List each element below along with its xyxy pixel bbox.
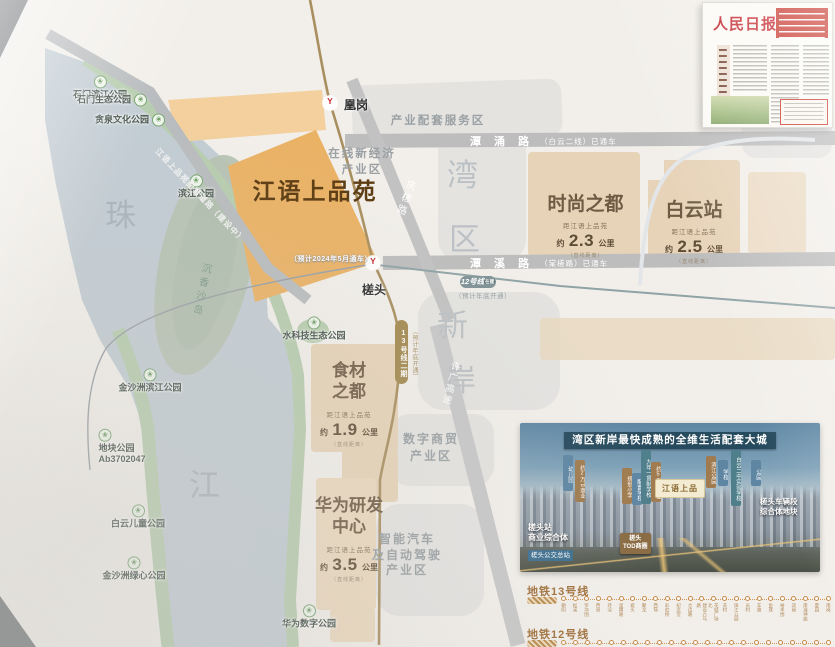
station-dot-icon xyxy=(745,596,750,601)
metro-station-item xyxy=(608,640,615,647)
newspaper-clipping: 人民日报 xyxy=(702,2,833,128)
bay-char-wan: 湾 xyxy=(447,150,480,195)
distance-value: 约 2.5 公里 xyxy=(648,237,740,257)
station-huanggang-label: 凰岗 xyxy=(344,96,368,113)
station-dot-icon xyxy=(790,640,795,645)
metro-station-item xyxy=(740,640,747,647)
park-icon: ❀ xyxy=(152,114,165,127)
station-dot-icon xyxy=(609,640,614,645)
amenity-flag: 公园 xyxy=(751,460,761,486)
line13-stations: 朝阳 松溪 罗冲围 西洲 环滘 里横路 槎头 聚龙 西场 彩虹桥 xyxy=(560,596,832,623)
park-icon: ❀ xyxy=(302,604,315,617)
metro-station-item xyxy=(680,640,687,647)
metro-station-item xyxy=(692,640,699,647)
park-shimen-shengtai: 石门生态公园❀ xyxy=(77,94,147,107)
river-char-zhu: 珠 xyxy=(105,190,138,235)
metro-station-item: 西场 xyxy=(652,596,659,623)
metro-station-item: 员村 xyxy=(744,596,751,623)
amenity-flag: 滨江公园 xyxy=(706,456,716,488)
newspaper-photo xyxy=(711,96,769,124)
zone-shuzi-shangmao: 数字商贸 产业区 xyxy=(381,431,481,465)
metro-station-item: 环滘 xyxy=(606,596,613,623)
poi-food-city: 食材 之都 距江语上品苑 约 1.9 公里 （直线距离） xyxy=(305,360,393,448)
road-tanyong-label: 潭 涌 路 （白云二线）已通车 xyxy=(470,133,617,149)
amenity-flag: 幼儿园 xyxy=(563,455,573,491)
station-dot-icon xyxy=(802,640,807,645)
line12-project-badge xyxy=(527,640,557,647)
station-dot-icon xyxy=(826,640,831,645)
distance-value: 约 3.5 公里 xyxy=(303,555,395,575)
metro-station-item: 西洲 xyxy=(595,596,602,623)
station-dot-icon xyxy=(729,640,734,645)
metro-station-item: 纪念堂 xyxy=(675,596,682,623)
station-dot-icon xyxy=(573,640,578,645)
metro-station-item: 鱼珠 xyxy=(767,596,774,623)
station-dot-icon xyxy=(711,596,716,601)
station-dot-icon xyxy=(757,596,762,601)
metro-station-item xyxy=(825,640,832,647)
metro-station-item: 建设六马路 xyxy=(698,596,705,623)
shore-char-xin: 新 xyxy=(437,300,470,345)
metro-station-item: 珠江公园 xyxy=(733,596,740,623)
metro-station-item xyxy=(584,640,591,647)
zone-peitao-fuwu: 产业配套服务区 xyxy=(368,112,508,128)
station-dot-icon xyxy=(688,596,693,601)
station-dot-icon xyxy=(681,640,686,645)
metro-station-item: 朝阳 xyxy=(560,596,567,623)
park-jinshazhou-lvxin: ❀金沙洲绿心公园 xyxy=(102,556,165,581)
station-dot-icon xyxy=(676,596,681,601)
park-tanquan: 贪泉文化公园❀ xyxy=(95,114,165,127)
bay-char-qu: 区 xyxy=(449,214,482,259)
metro-station-item xyxy=(560,640,567,647)
metro-station-item: 罗冲围 xyxy=(583,596,590,623)
park-dikuai: ❀地块公园 Ab3702047 xyxy=(98,429,145,466)
distance-value: 约 2.3 公里 xyxy=(528,231,643,251)
chatou-open-note: （预计2024年5月通车） xyxy=(290,254,372,264)
newspaper-text-column xyxy=(803,45,829,95)
metro-station-item: 花城广场北 xyxy=(710,596,717,623)
chatou-bus-terminal-tag: 槎头公交总站 xyxy=(528,550,573,561)
poi-huawei-rd: 华为研发 中心 距江语上品苑 约 3.5 公里 （直线距离） xyxy=(303,495,395,583)
metro-station-item xyxy=(656,640,663,647)
station-dot-icon xyxy=(669,640,674,645)
station-dot-icon xyxy=(699,596,704,601)
metro-station-item xyxy=(668,640,675,647)
metro-station-item: 车陂 xyxy=(756,596,763,623)
newspaper-vertical-headline xyxy=(717,45,730,103)
park-jinshazhou-binjiang: ❀金沙洲滨江公园 xyxy=(118,368,181,393)
station-dot-icon xyxy=(584,596,589,601)
metro-station-item xyxy=(789,640,796,647)
metro-station-item: 彩虹桥 xyxy=(664,596,671,623)
newspaper-text-column xyxy=(733,45,767,93)
station-dot-icon xyxy=(561,640,566,645)
metro-station-item: 双岗 xyxy=(790,596,797,623)
metro-station-item: 松溪 xyxy=(572,596,579,623)
metro-station-item: 聚龙 xyxy=(641,596,648,623)
metro-station-item: 南海神庙 xyxy=(802,596,809,623)
station-dot-icon xyxy=(665,596,670,601)
chatou-station-complex-label: 槎头站 商业综合体 xyxy=(528,523,568,544)
amenity-flag: 规划小学 xyxy=(622,468,632,504)
station-dot-icon xyxy=(814,596,819,601)
line13-phase2-badge: 13号线二期 xyxy=(395,320,408,384)
station-dot-icon xyxy=(596,596,601,601)
amenity-flag: 白云二中实验学校 xyxy=(731,450,741,506)
metro-station-item: 里横路 xyxy=(618,596,625,623)
metro-station-item: 裕丰围 xyxy=(779,596,786,623)
project-name: 江语上品苑 xyxy=(230,172,400,206)
station-dot-icon xyxy=(766,640,771,645)
station-dot-icon xyxy=(814,640,819,645)
newspaper-masthead: 人民日报 xyxy=(713,13,777,34)
newspaper-headline-box xyxy=(776,8,828,38)
station-dot-icon xyxy=(768,596,773,601)
metro-station-item xyxy=(777,640,784,647)
station-dot-icon xyxy=(561,596,566,601)
line12-badge: 12号线在建 xyxy=(460,276,496,288)
station-dot-icon xyxy=(791,596,796,601)
park-icon: ❀ xyxy=(131,504,144,517)
station-dot-icon xyxy=(778,640,783,645)
metro-station-item xyxy=(765,640,772,647)
station-dot-icon xyxy=(653,596,658,601)
line12-open-note: （预计年底开通） xyxy=(455,290,511,300)
poi-baiyun-station: 白云站 距江语上品苑 约 2.5 公里 （直线距离） xyxy=(648,199,740,265)
metro-station-item xyxy=(801,640,808,647)
metro-station-item xyxy=(644,640,651,647)
amenity-flag: 学校 xyxy=(718,460,728,486)
metro-station-item xyxy=(704,640,711,647)
metro-station-item xyxy=(596,640,603,647)
park-icon: ❀ xyxy=(307,316,320,329)
station-dot-icon xyxy=(642,596,647,601)
station-dot-icon xyxy=(619,596,624,601)
station-dot-icon xyxy=(780,596,785,601)
amenity-flag: 约2万㎡商业 xyxy=(575,460,585,502)
distance-value: 约 1.9 公里 xyxy=(305,420,393,440)
park-huawei-shuzi: ❀华为数字公园 xyxy=(282,604,336,629)
depot-complex-label: 槎头车辆段 综合体地块 xyxy=(760,497,798,517)
station-dot-icon xyxy=(630,596,635,601)
station-dot-icon xyxy=(597,640,602,645)
station-dot-icon xyxy=(573,596,578,601)
river-char-jiang: 江 xyxy=(189,460,222,505)
poi-fashion-city: 时尚之都 距江语上品苑 约 2.3 公里 （直线距离） xyxy=(528,193,643,259)
metro-station-item xyxy=(632,640,639,647)
metro-station-item xyxy=(813,640,820,647)
station-dot-icon xyxy=(705,640,710,645)
station-dot-icon xyxy=(607,596,612,601)
metro-station-item xyxy=(728,640,735,647)
station-dot-icon xyxy=(826,596,831,601)
park-icon: ❀ xyxy=(134,94,147,107)
metro-station-item: 槎头 xyxy=(629,596,636,623)
station-dot-icon xyxy=(734,596,739,601)
park-shuikeji: ❀水科技生态公园 xyxy=(282,316,345,341)
station-dot-icon xyxy=(693,640,698,645)
park-icon: ❀ xyxy=(143,368,156,381)
station-dot-icon xyxy=(741,640,746,645)
station-dot-icon xyxy=(803,596,808,601)
metro-station-item: 南岗 xyxy=(825,596,832,623)
newspaper-framed-article xyxy=(780,99,828,125)
station-dot-icon xyxy=(717,640,722,645)
park-icon: ❀ xyxy=(127,556,140,569)
line13-project-badge xyxy=(527,597,557,604)
project-logo-plaque: 江语上品 xyxy=(655,479,705,498)
metro-station-item xyxy=(716,640,723,647)
line13-open-note: （预计年底开通） xyxy=(410,328,419,390)
line12-stations xyxy=(560,640,832,647)
metro-station-item xyxy=(620,640,627,647)
metro-station-item: 仓边路 xyxy=(687,596,694,623)
station-chatou-label: 槎头 xyxy=(362,281,386,298)
metro-station-item: 夏园 xyxy=(813,596,820,623)
metro-station-item xyxy=(572,640,579,647)
station-dot-icon xyxy=(621,640,626,645)
promo-map-poster: 珠 江 湾 区 新 岸 沉香沙岛 ❀石门滨江公园 石门生态公园❀ 贪泉文化公园❀… xyxy=(0,0,835,647)
station-dot-icon xyxy=(633,640,638,645)
station-dot-icon xyxy=(722,596,727,601)
park-icon: ❀ xyxy=(93,75,106,88)
metro-logo-huanggang: Y xyxy=(323,96,337,110)
park-icon: ❀ xyxy=(98,429,111,442)
station-dot-icon xyxy=(645,640,650,645)
metro-station-item xyxy=(753,640,760,647)
park-baiyun-ertong: ❀白云儿童公园 xyxy=(111,504,165,529)
amenity-flag: 九年一贯制学校 xyxy=(641,450,651,504)
station-dot-icon xyxy=(585,640,590,645)
station-dot-icon xyxy=(754,640,759,645)
chatou-tod-tag: 槎头 TOD商圈 xyxy=(620,533,651,554)
aerial-render-panel: 湾区新岸最快成熟的全维生活配套大城 幼儿园约2万㎡商业规划小学配套学校九年一贯制… xyxy=(520,423,820,572)
metro-station-item: 冼村 xyxy=(721,596,728,623)
station-dot-icon xyxy=(657,640,662,645)
